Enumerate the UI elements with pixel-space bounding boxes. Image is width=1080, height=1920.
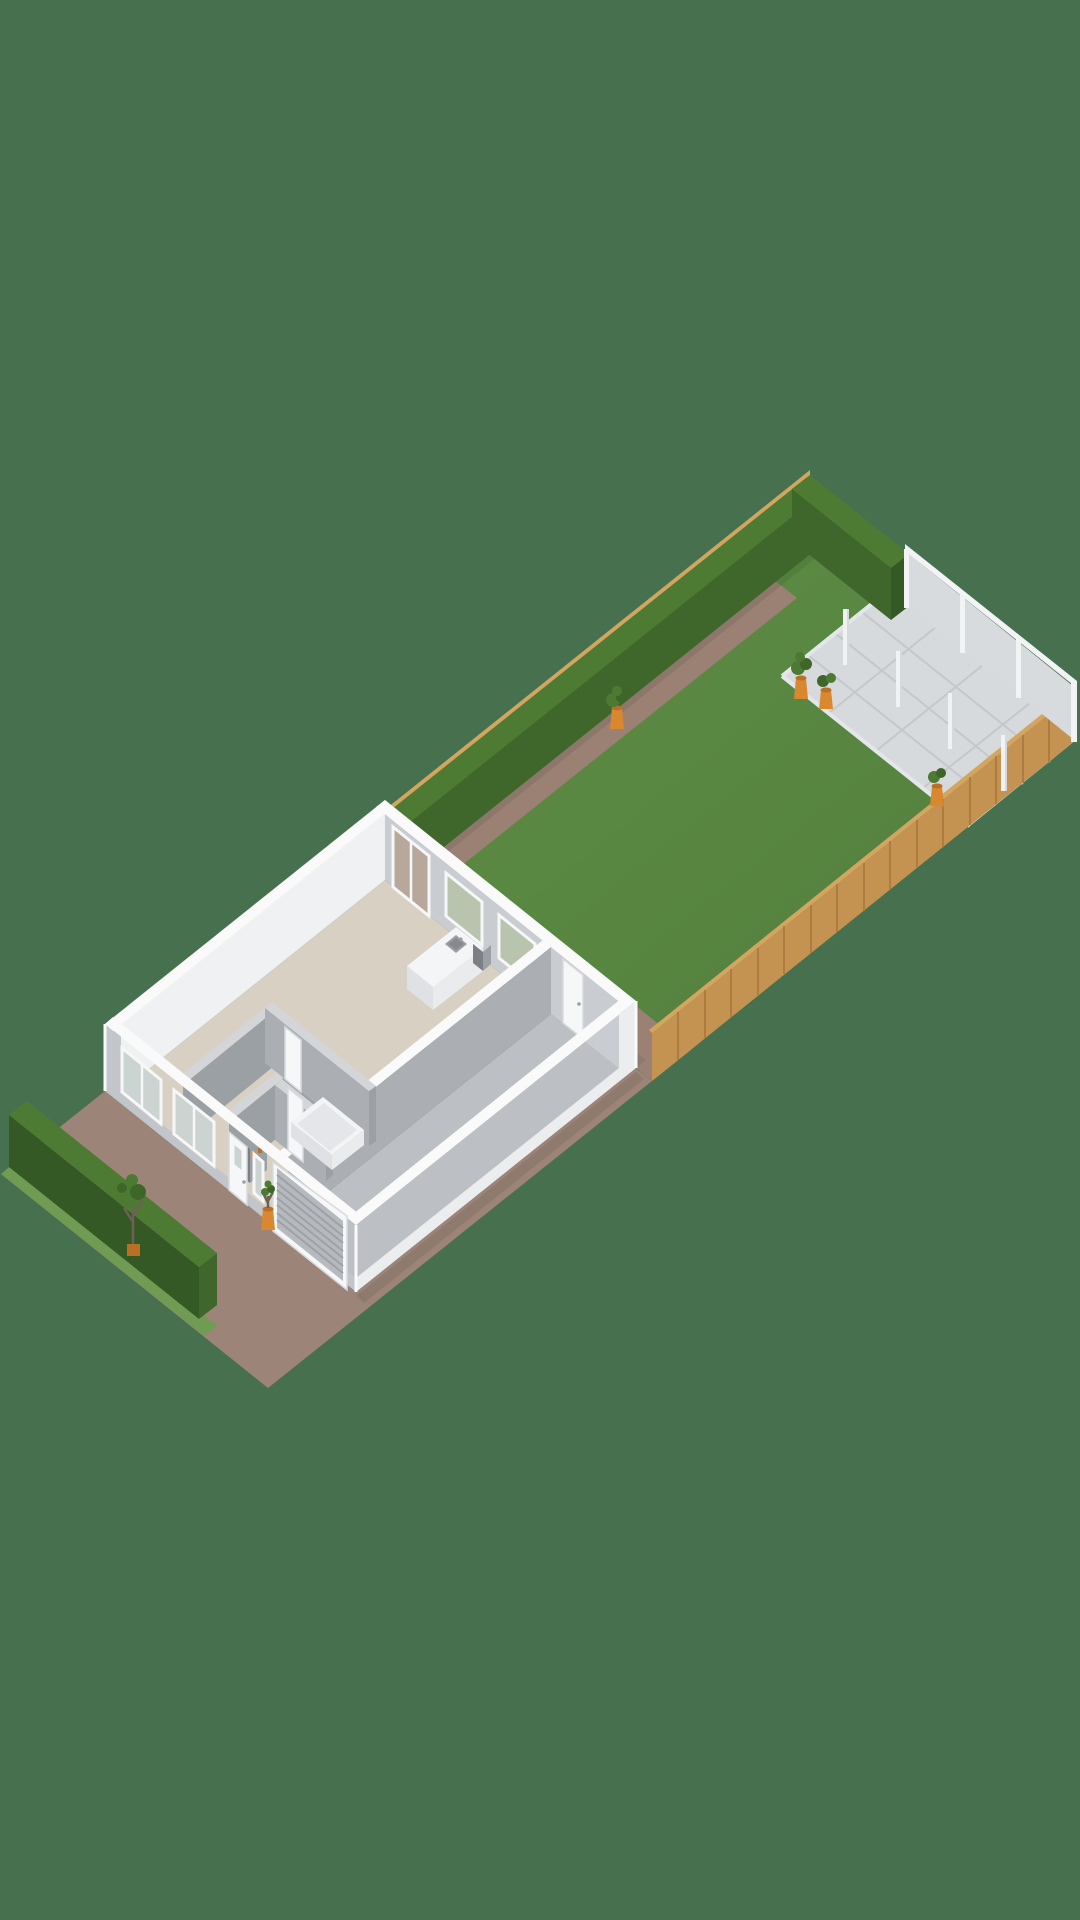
floorplan-render-stage xyxy=(0,0,1080,1920)
screen-post xyxy=(1016,639,1021,698)
tree-foliage xyxy=(126,1174,138,1186)
cluster-wall-end xyxy=(369,1086,376,1146)
white-post xyxy=(948,693,954,749)
white-post xyxy=(896,651,902,707)
screen-post xyxy=(960,594,965,653)
white-post xyxy=(843,609,849,665)
floorplan-3d-render xyxy=(0,0,1080,1920)
tree-foliage xyxy=(117,1183,127,1193)
tree-pot xyxy=(127,1244,140,1256)
screen-post xyxy=(904,549,909,608)
tree-foliage xyxy=(130,1184,146,1200)
screen-post xyxy=(1071,683,1077,742)
white-post xyxy=(1001,735,1007,791)
